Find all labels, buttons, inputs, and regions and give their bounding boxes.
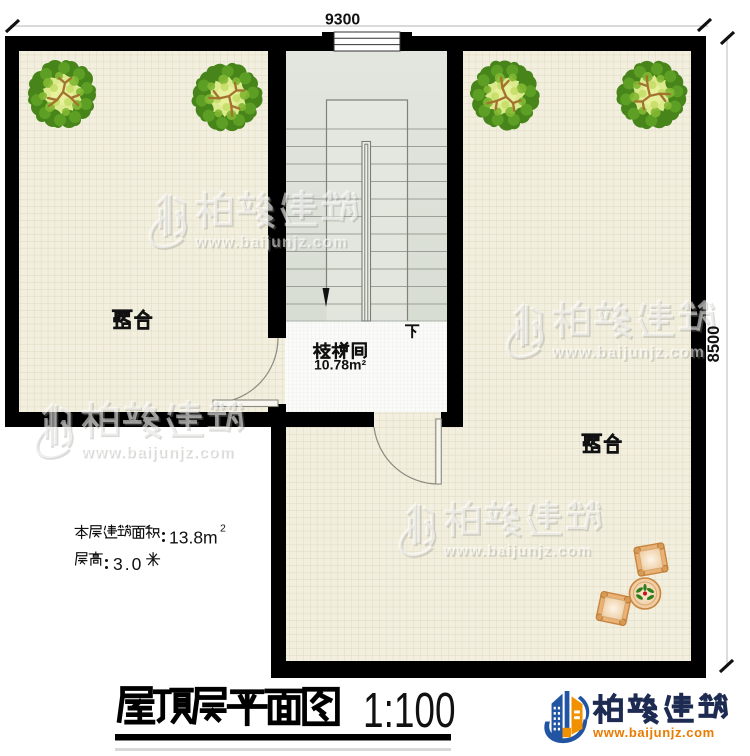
svg-text:1:100: 1:100 — [363, 684, 456, 738]
svg-text:2: 2 — [220, 523, 226, 535]
svg-text:13.8m: 13.8m — [169, 528, 218, 548]
svg-text:3.0: 3.0 — [113, 554, 143, 574]
svg-text:www.baijunjz.com: www.baijunjz.com — [592, 725, 715, 740]
svg-text:9300: 9300 — [325, 12, 360, 29]
svg-text:8500: 8500 — [705, 326, 723, 363]
svg-text:10.78m²: 10.78m² — [314, 357, 366, 373]
